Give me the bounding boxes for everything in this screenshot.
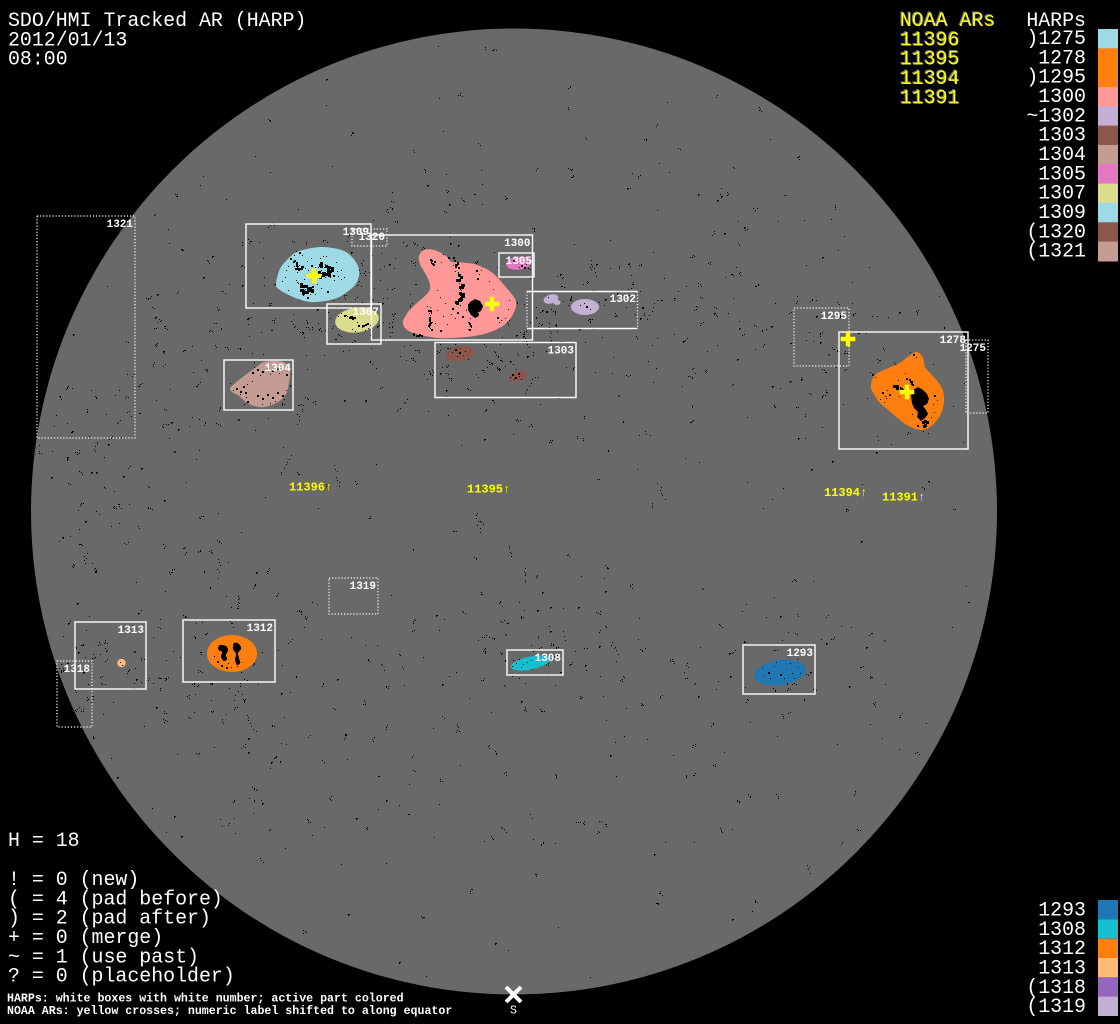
svg-text:1293: 1293 [787, 648, 814, 660]
svg-text:1305: 1305 [506, 256, 533, 268]
svg-text:08:00: 08:00 [8, 48, 68, 71]
svg-text:11391↑: 11391↑ [882, 490, 925, 504]
svg-text:1302: 1302 [610, 294, 636, 306]
svg-text:1295: 1295 [821, 311, 848, 323]
svg-text:H = 18: H = 18 [8, 829, 80, 852]
svg-text:11395↑: 11395↑ [467, 483, 510, 497]
svg-text:HARPs: white boxes with white: HARPs: white boxes with white number; ac… [7, 993, 404, 1006]
svg-text:1275: 1275 [960, 343, 987, 355]
svg-text:1304: 1304 [265, 363, 292, 375]
svg-text:1307: 1307 [353, 307, 379, 319]
svg-text:11394↑: 11394↑ [824, 486, 867, 500]
svg-text:1300: 1300 [504, 238, 530, 250]
svg-text:11391: 11391 [900, 86, 960, 109]
svg-text:1303: 1303 [548, 345, 575, 357]
svg-text:1319: 1319 [350, 581, 376, 593]
svg-text:11396↑: 11396↑ [289, 481, 332, 495]
svg-text:1321: 1321 [107, 219, 134, 231]
svg-text:1308: 1308 [535, 653, 562, 665]
svg-text:S: S [510, 1005, 517, 1018]
svg-text:(1321: (1321 [1026, 240, 1086, 263]
svg-text:? = 0 (placeholder): ? = 0 (placeholder) [8, 965, 235, 988]
svg-text:NOAA ARs: yellow crosses; nume: NOAA ARs: yellow crosses; numeric label … [7, 1005, 452, 1018]
svg-text:(1319: (1319 [1026, 995, 1086, 1018]
svg-text:1313: 1313 [118, 625, 145, 637]
svg-text:1318: 1318 [64, 664, 91, 676]
svg-text:1312: 1312 [247, 623, 273, 635]
svg-text:1320: 1320 [359, 232, 385, 244]
